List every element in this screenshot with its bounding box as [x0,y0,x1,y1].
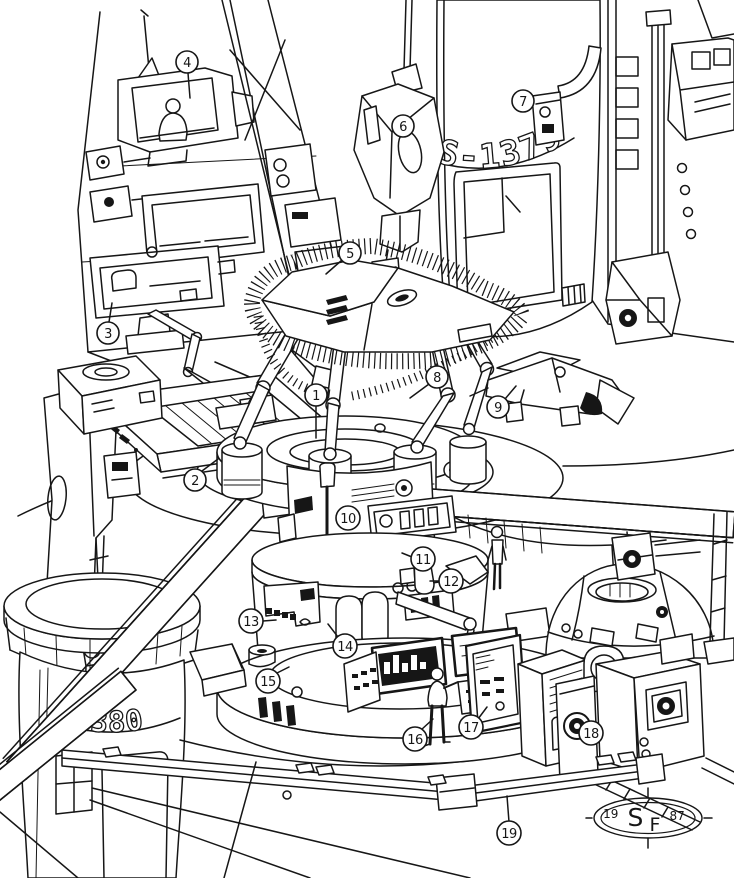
svg-text:1: 1 [312,389,320,404]
svg-text:7: 7 [519,95,527,110]
svg-text:19: 19 [501,827,517,842]
svg-text:12: 12 [443,575,459,590]
svg-text:17: 17 [463,721,479,736]
svg-text:10: 10 [340,512,356,527]
launch-facility-illustration: S-1379 [0,0,734,878]
rocket-s1379: S-1379 [434,0,601,337]
svg-text:15: 15 [260,675,276,690]
rocket-vent-grille [562,284,585,306]
svg-text:8: 8 [433,371,441,386]
svg-text:9: 9 [494,401,502,416]
gantry-rail-base [606,252,680,344]
svg-text:5: 5 [346,247,354,262]
svg-text:16: 16 [407,733,423,748]
svg-text:14: 14 [337,640,353,655]
bench-front-box [104,452,140,498]
svg-text:3: 3 [104,327,112,342]
svg-text:11: 11 [415,553,431,568]
callout-7: 7 [512,90,534,112]
svg-text:13: 13 [243,615,259,630]
svg-text:2: 2 [191,474,199,489]
svg-text:18: 18 [583,727,599,742]
gantry-top-box [668,38,734,140]
svg-text:4: 4 [183,56,191,71]
svg-text:6: 6 [399,120,407,135]
callout-10: 10 [336,506,360,530]
illustration-canvas: S-1379 [0,0,734,878]
callout-18: 18 [579,721,603,745]
callout-6: 6 [392,115,414,137]
